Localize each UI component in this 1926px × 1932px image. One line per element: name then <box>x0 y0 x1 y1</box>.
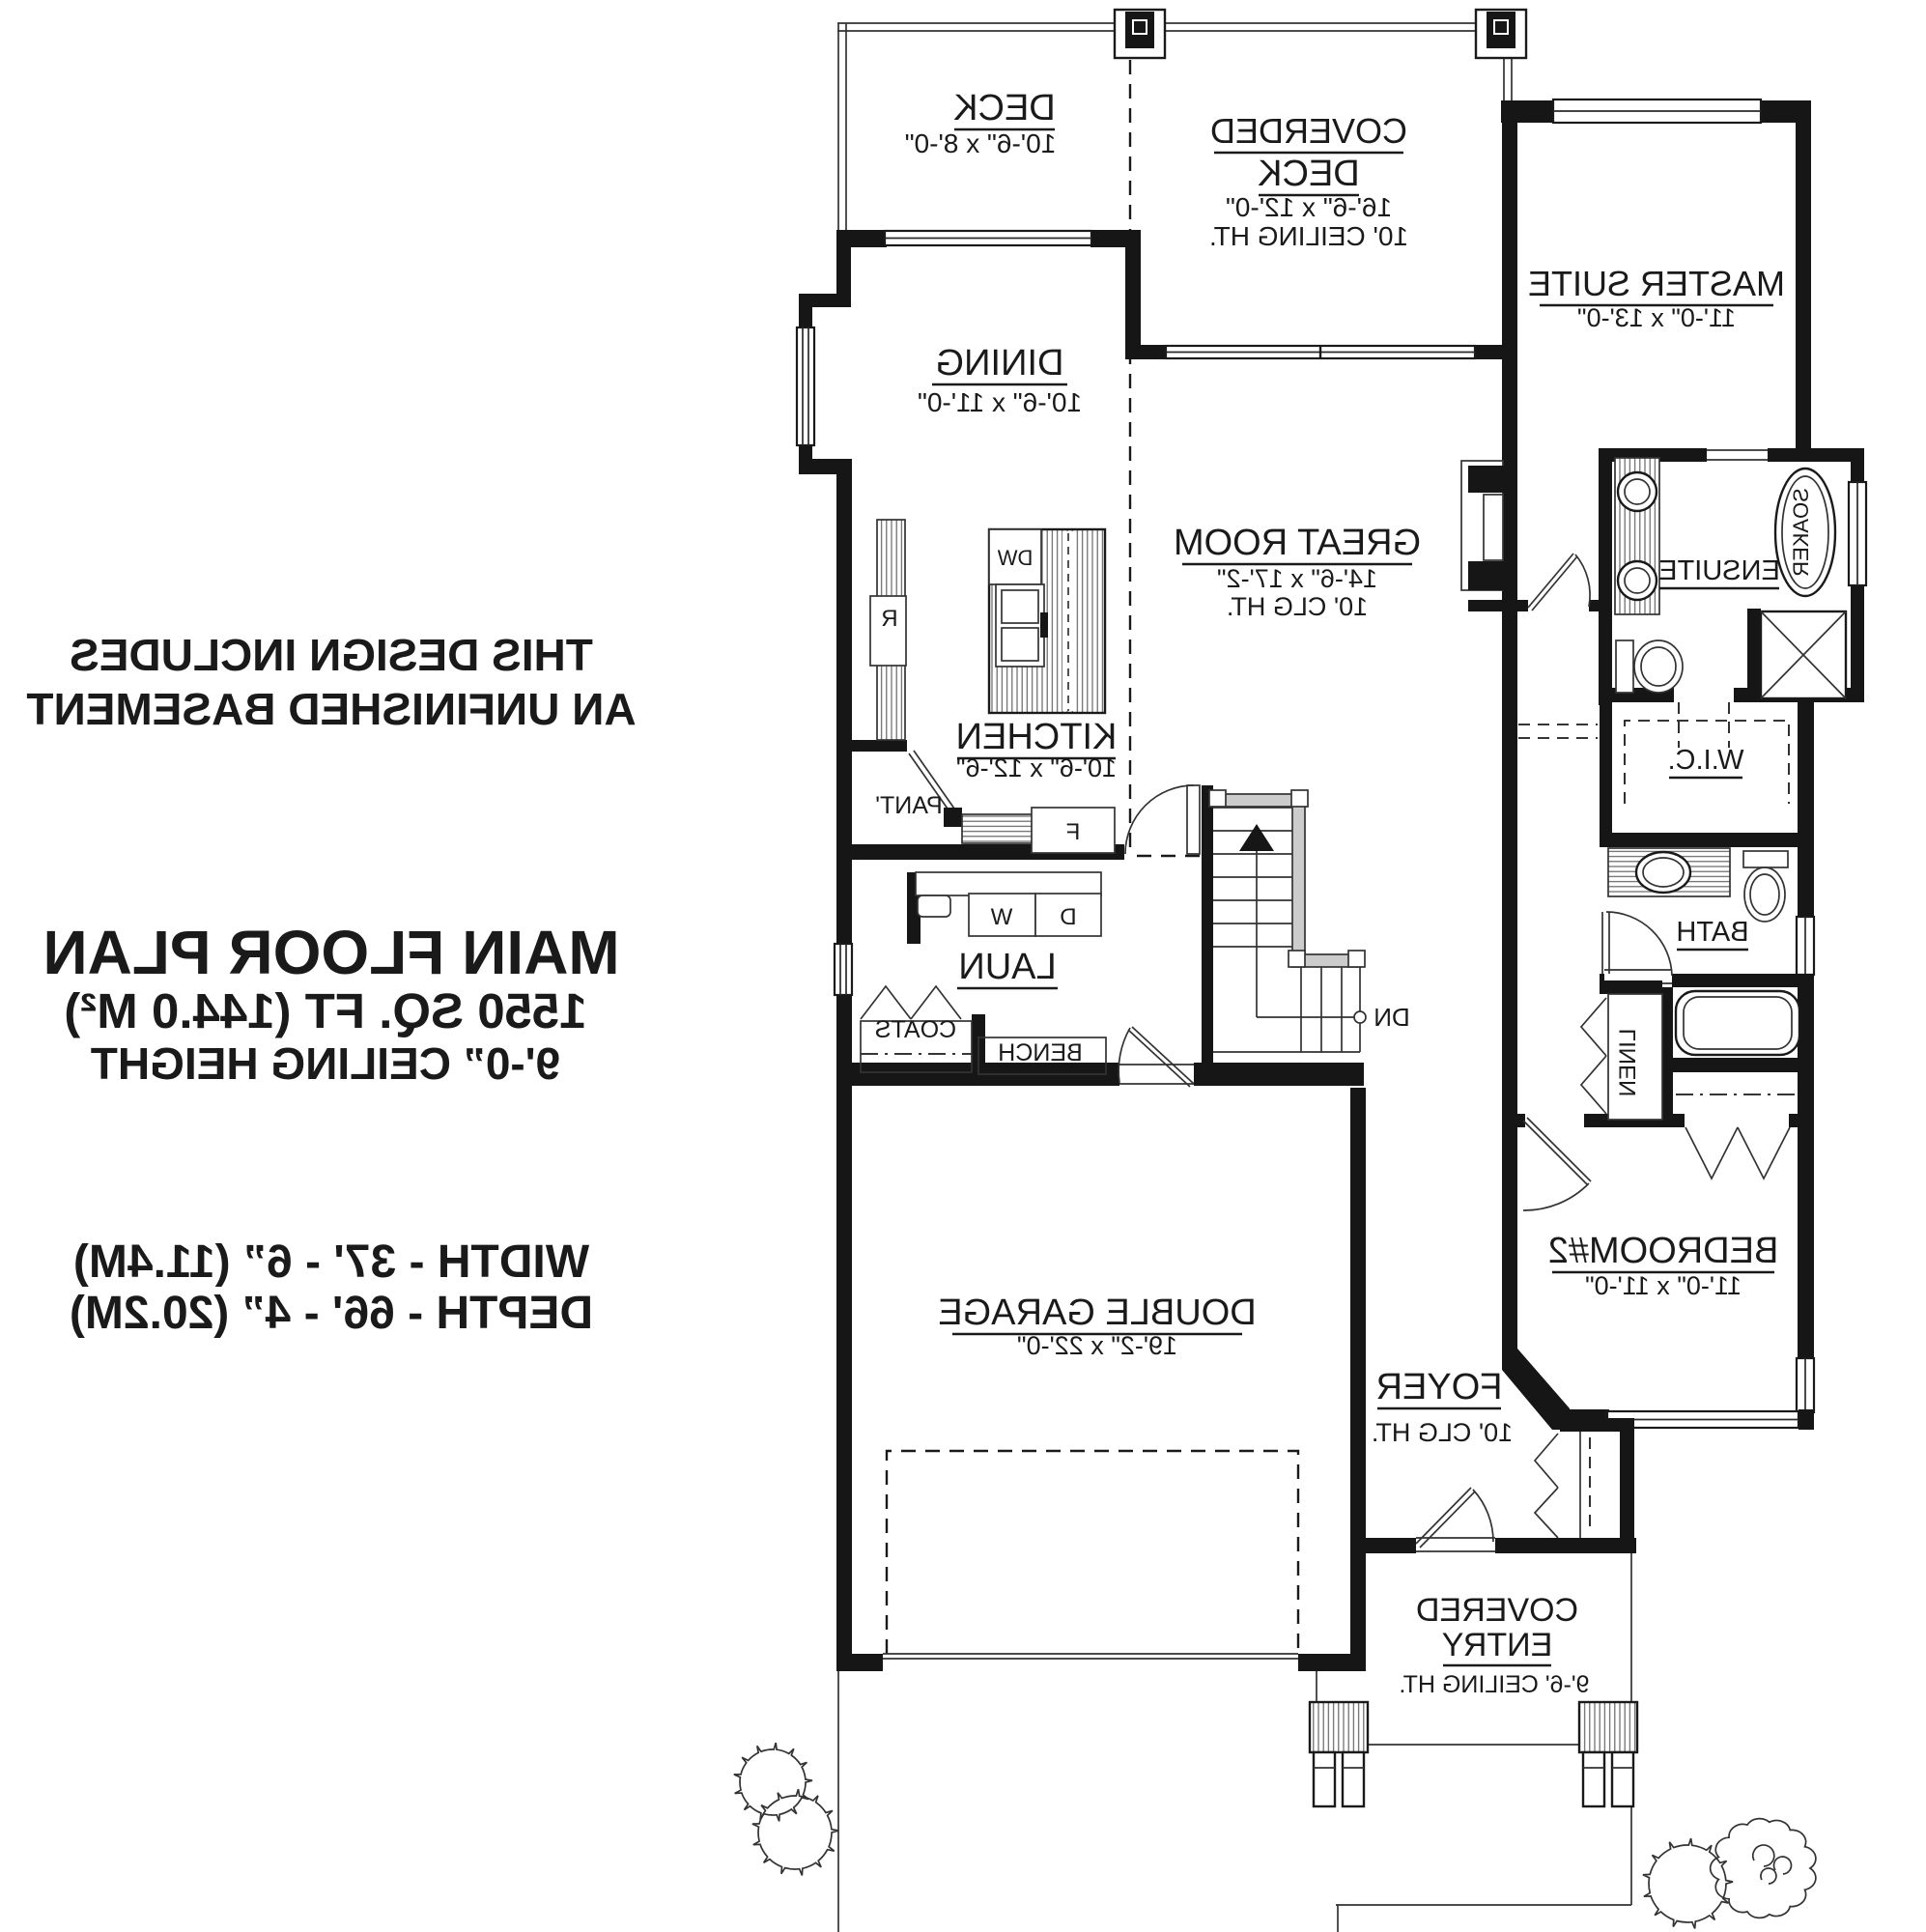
svg-text:R: R <box>881 606 897 632</box>
svg-text:DOUBLE GARAGE: DOUBLE GARAGE <box>938 1293 1256 1333</box>
svg-text:10' CLG HT.: 10' CLG HT. <box>1227 592 1368 621</box>
svg-text:PANT': PANT' <box>875 792 943 819</box>
svg-text:MAIN FLOOR PLAN: MAIN FLOOR PLAN <box>42 918 619 987</box>
svg-text:F: F <box>1066 819 1081 845</box>
svg-text:KITCHEN: KITCHEN <box>956 717 1118 757</box>
svg-text:ENTRY: ENTRY <box>1442 1627 1553 1663</box>
svg-text:W: W <box>990 904 1012 930</box>
svg-text:9'-6' CEILING HT.: 9'-6' CEILING HT. <box>1399 1671 1589 1698</box>
svg-text:11'-0" x 13'-0": 11'-0" x 13'-0" <box>1577 303 1736 332</box>
svg-text:WIDTH - 37' - 6” (11.4M): WIDTH - 37' - 6” (11.4M) <box>73 1236 589 1288</box>
svg-text:10' CEILING HT.: 10' CEILING HT. <box>1209 221 1408 251</box>
svg-text:W.I.C.: W.I.C. <box>1668 745 1744 776</box>
svg-text:10' CLG HT.: 10' CLG HT. <box>1372 1418 1513 1447</box>
svg-text:10'-6" x 12'-6": 10'-6" x 12'-6" <box>956 753 1117 782</box>
svg-text:DN: DN <box>1374 1003 1410 1032</box>
svg-text:COVERED: COVERED <box>1416 1592 1578 1629</box>
svg-text:BATH: BATH <box>1676 917 1748 948</box>
svg-text:SOAKER: SOAKER <box>1789 488 1813 577</box>
svg-text:DW: DW <box>997 546 1033 570</box>
svg-text:THIS DESIGN INCLUDES: THIS DESIGN INCLUDES <box>70 630 593 680</box>
svg-text:DECK: DECK <box>953 88 1056 128</box>
svg-text:MASTER SUITE: MASTER SUITE <box>1528 264 1785 303</box>
svg-text:LAUN: LAUN <box>958 947 1056 987</box>
svg-text:10'-6" x 8'-0": 10'-6" x 8'-0" <box>905 128 1057 158</box>
svg-text:COATS: COATS <box>875 1016 956 1043</box>
svg-text:BENCH: BENCH <box>998 1039 1083 1066</box>
svg-text:ENSUITE: ENSUITE <box>1658 555 1780 586</box>
svg-text:1550 SQ. FT (144.0 M²): 1550 SQ. FT (144.0 M²) <box>64 983 586 1038</box>
svg-text:COVERDED: COVERDED <box>1210 111 1407 151</box>
svg-text:FOYER: FOYER <box>1376 1367 1503 1407</box>
svg-text:19'-2" x 22'-0": 19'-2" x 22'-0" <box>1017 1331 1177 1360</box>
svg-text:9'-0” CEILING HEIGHT: 9'-0” CEILING HEIGHT <box>91 1038 560 1089</box>
svg-text:DINING: DINING <box>936 343 1064 384</box>
svg-text:11'-0" x 11'-0": 11'-0" x 11'-0" <box>1585 1271 1742 1300</box>
svg-text:DECK: DECK <box>1258 154 1360 194</box>
svg-text:DEPTH - 66' - 4” (20.2M): DEPTH - 66' - 4” (20.2M) <box>70 1288 593 1339</box>
svg-text:16'-6" x 12'-0": 16'-6" x 12'-0" <box>1226 192 1392 222</box>
svg-text:14'-6" x 17'-2": 14'-6" x 17'-2" <box>1217 564 1377 593</box>
svg-text:D: D <box>1060 904 1076 930</box>
svg-text:GREAT ROOM: GREAT ROOM <box>1174 523 1421 563</box>
svg-text:BEDROOM#2: BEDROOM#2 <box>1548 1231 1779 1271</box>
svg-text:10'-6" x 11'-0": 10'-6" x 11'-0" <box>918 387 1082 417</box>
svg-text:LINEN: LINEN <box>1615 1029 1641 1097</box>
svg-text:AN UNFINISHED BASEMENT: AN UNFINISHED BASEMENT <box>26 684 636 734</box>
